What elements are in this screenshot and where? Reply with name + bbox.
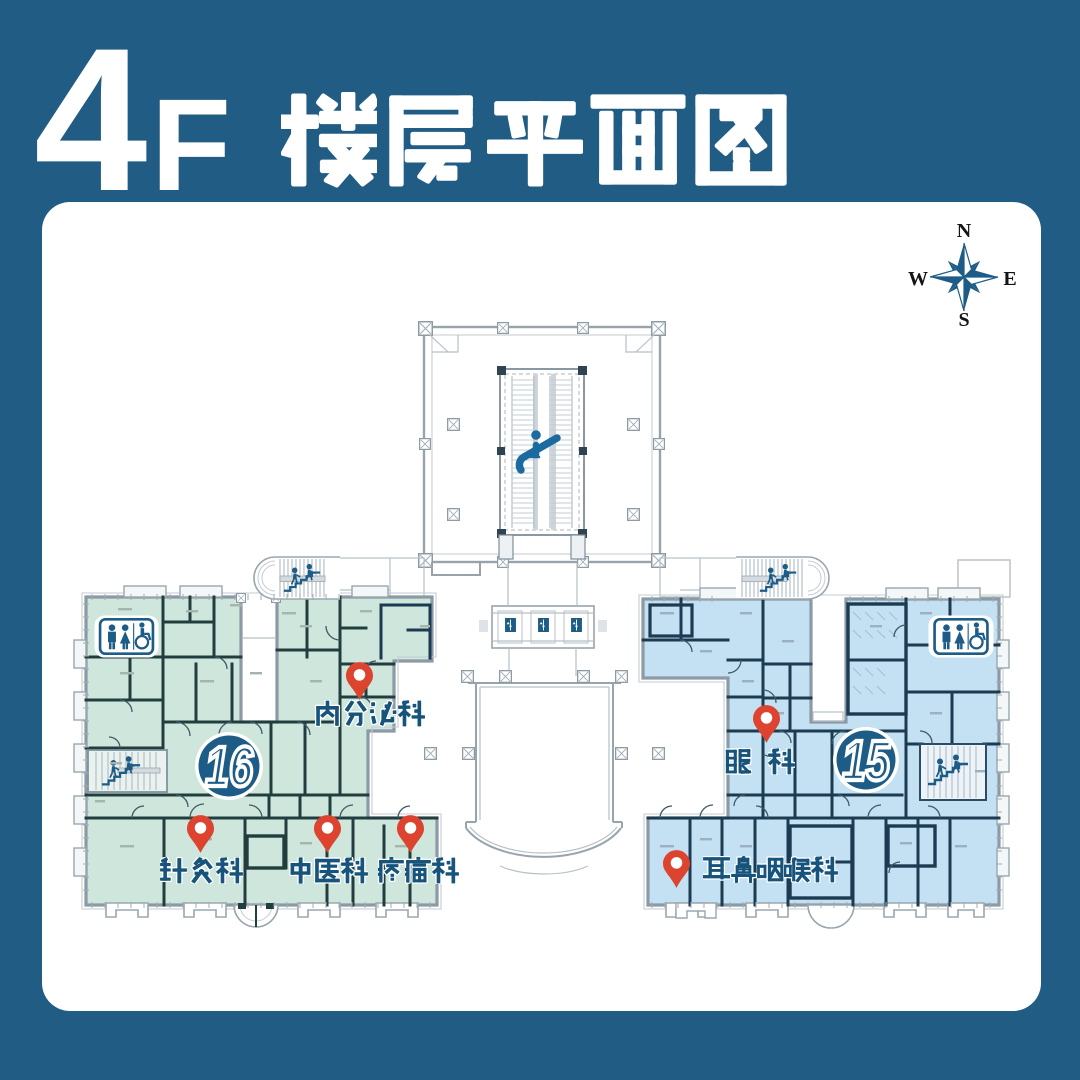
svg-text:4: 4 [34,6,147,234]
svg-text:W: W [908,268,928,290]
svg-text:S: S [958,309,969,331]
svg-text:E: E [1003,268,1016,290]
svg-text:N: N [957,220,972,242]
svg-text:15: 15 [842,729,891,793]
svg-text:16: 16 [205,735,253,799]
svg-text:F: F [151,71,231,218]
